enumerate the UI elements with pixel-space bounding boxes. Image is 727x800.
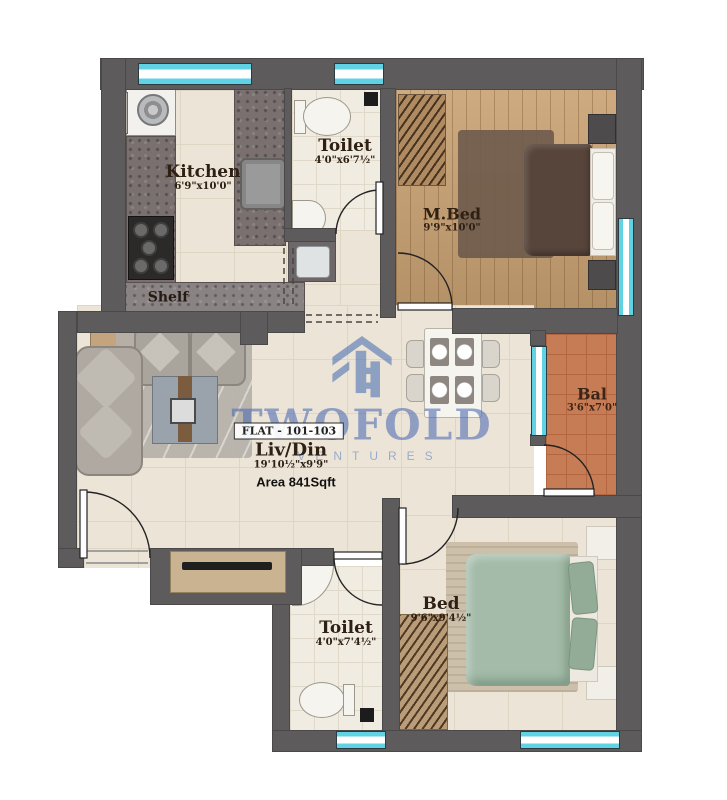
hob-burner — [141, 240, 157, 256]
master-bed-duvet — [524, 144, 592, 256]
master-wardrobe — [398, 94, 446, 186]
wall-right — [616, 58, 642, 752]
tv-console-panel — [170, 551, 286, 593]
toilet-bottom-name: Toilet — [319, 618, 373, 638]
wall-entry-stub — [58, 548, 84, 568]
floor-plan: TWOFOLD VENTURES Kitchen 6'9"x10'0" Toil… — [0, 0, 727, 800]
wall-bed-top — [452, 495, 642, 518]
toilet-top-bowl — [303, 97, 351, 136]
wall-bed-left — [382, 498, 400, 752]
wall-left-lower — [58, 311, 77, 568]
living-dining-label: Liv/Din 19'10½"x9'9" — [254, 441, 329, 470]
bed-window — [520, 731, 620, 749]
bed-label: Bed 9'6"x9'4½" — [411, 596, 472, 624]
wall-balcony-left-a — [530, 330, 546, 346]
place-setting — [430, 338, 449, 366]
toilet-top-name: Toilet — [318, 136, 372, 156]
toilet-top-ventilator — [334, 63, 384, 85]
dining-chair — [482, 340, 500, 368]
toilet-top-shaft — [364, 92, 378, 106]
toilet-top-label: Toilet 4'0"x6'7½" — [315, 138, 376, 166]
wall-kitchen-bottom — [77, 311, 305, 333]
shelf-name: Shelf — [148, 290, 189, 306]
dining-chair — [406, 340, 424, 368]
master-bed-window — [618, 218, 634, 316]
master-bed-name: M.Bed — [423, 204, 481, 223]
toilet-bottom-tank — [343, 684, 355, 716]
kitchen-name: Kitchen — [166, 162, 241, 182]
kitchen-sink — [240, 158, 286, 210]
toilet-bottom-window — [336, 731, 386, 749]
place-setting — [455, 338, 474, 366]
kitchen-shelf-counter — [103, 282, 305, 312]
balcony-dims: 3'6"x7'0" — [567, 403, 617, 414]
bed-pillow — [568, 617, 598, 671]
toilet-bottom-dims: 4'0"x7'4½" — [316, 638, 377, 649]
coffee-table-tray — [170, 398, 196, 424]
wall-left-upper — [101, 58, 126, 313]
toilet-bottom-drain — [360, 708, 374, 722]
tv-bar — [182, 562, 272, 570]
balcony-window — [531, 346, 547, 436]
wall-stub — [240, 311, 268, 345]
washing-machine-drum — [137, 94, 169, 126]
bed-duvet — [466, 554, 570, 686]
utility-basin — [296, 246, 330, 278]
dining-chair — [482, 374, 500, 402]
wall-mid-vertical — [380, 88, 396, 318]
balcony-floor — [546, 334, 618, 498]
hob-burner — [133, 222, 149, 238]
toilet-bottom-bowl — [299, 682, 345, 718]
shelf-label: Shelf — [148, 291, 189, 306]
wall-toilet-top-bottom — [284, 228, 336, 242]
bed-wardrobe — [398, 614, 448, 730]
toilet-bottom-label: Toilet 4'0"x7'4½" — [316, 620, 377, 648]
wall-toilet-top-left — [284, 88, 292, 234]
kitchen-dims: 6'9"x10'0" — [166, 182, 241, 193]
bed-dims: 9'6"x9'4½" — [411, 614, 472, 625]
balcony-name: Bal — [577, 384, 607, 403]
flat-number-badge: FLAT - 101-103 — [234, 423, 344, 440]
living-dining-dims: 19'10½"x9'9" — [254, 460, 329, 471]
master-side-table — [588, 114, 616, 144]
toilet-top-dims: 4'0"x6'7½" — [315, 156, 376, 167]
master-side-table — [588, 260, 616, 290]
bed-pillow — [567, 561, 598, 615]
bed-name: Bed — [422, 594, 459, 614]
balcony-label: Bal 3'6"x7'0" — [567, 386, 617, 413]
master-bed-pillow — [592, 202, 614, 250]
living-dining-name: Liv/Din — [255, 439, 327, 460]
entrance-threshold-floor — [84, 548, 150, 568]
master-bed-dims: 9'9"x10'0" — [423, 223, 481, 234]
hob-burner — [133, 258, 149, 274]
dining-chair — [406, 374, 424, 402]
hob-burner — [153, 222, 169, 238]
area-label: Area 841Sqft — [256, 475, 335, 490]
master-bed-pillow — [592, 152, 614, 200]
hob-burner — [153, 258, 169, 274]
kitchen-label: Kitchen 6'9"x10'0" — [166, 164, 241, 192]
master-bed-label: M.Bed 9'9"x10'0" — [423, 206, 481, 233]
kitchen-window — [138, 63, 252, 85]
